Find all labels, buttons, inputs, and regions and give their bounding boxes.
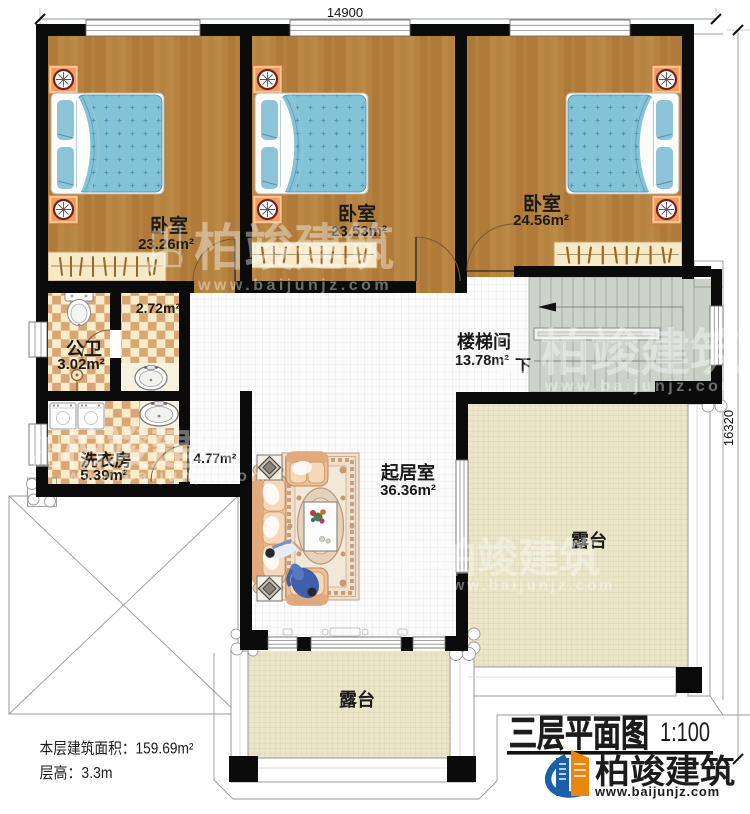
- svg-text:起居室: 起居室: [380, 462, 435, 483]
- svg-text:卧室: 卧室: [150, 214, 188, 237]
- svg-text:柏竣建筑: 柏竣建筑: [540, 325, 740, 381]
- svg-text:www.baijunjz.com: www.baijunjz.com: [437, 577, 615, 594]
- svg-text:36.36m²: 36.36m²: [380, 482, 436, 499]
- svg-text:柏竣建筑: 柏竣建筑: [62, 425, 238, 474]
- svg-text:www.baijunjz.com: www.baijunjz.com: [544, 378, 739, 395]
- svg-text:柏竣建筑: 柏竣建筑: [436, 535, 600, 581]
- svg-text:14900: 14900: [327, 5, 363, 20]
- svg-text:1:100: 1:100: [660, 717, 710, 747]
- svg-text:www.baijunjz.com: www.baijunjz.com: [197, 277, 392, 294]
- svg-text:三层平面图: 三层平面图: [509, 713, 649, 754]
- svg-text:楼梯间: 楼梯间: [457, 331, 511, 352]
- svg-text:www.baijunjz.com: www.baijunjz.com: [594, 784, 720, 799]
- svg-text:层高：3.3m: 层高：3.3m: [40, 764, 113, 782]
- svg-text:24.56m²: 24.56m²: [513, 212, 569, 229]
- svg-text:2.72m²: 2.72m²: [136, 300, 181, 316]
- svg-text:本层建筑面积：159.69m²: 本层建筑面积：159.69m²: [40, 740, 194, 758]
- svg-text:3.02m²: 3.02m²: [57, 356, 105, 373]
- svg-text:16320: 16320: [721, 410, 736, 446]
- svg-text:www.baijunjz.com: www.baijunjz.com: [66, 468, 269, 485]
- svg-text:柏竣建筑: 柏竣建筑: [194, 220, 394, 276]
- svg-text:露台: 露台: [339, 689, 375, 710]
